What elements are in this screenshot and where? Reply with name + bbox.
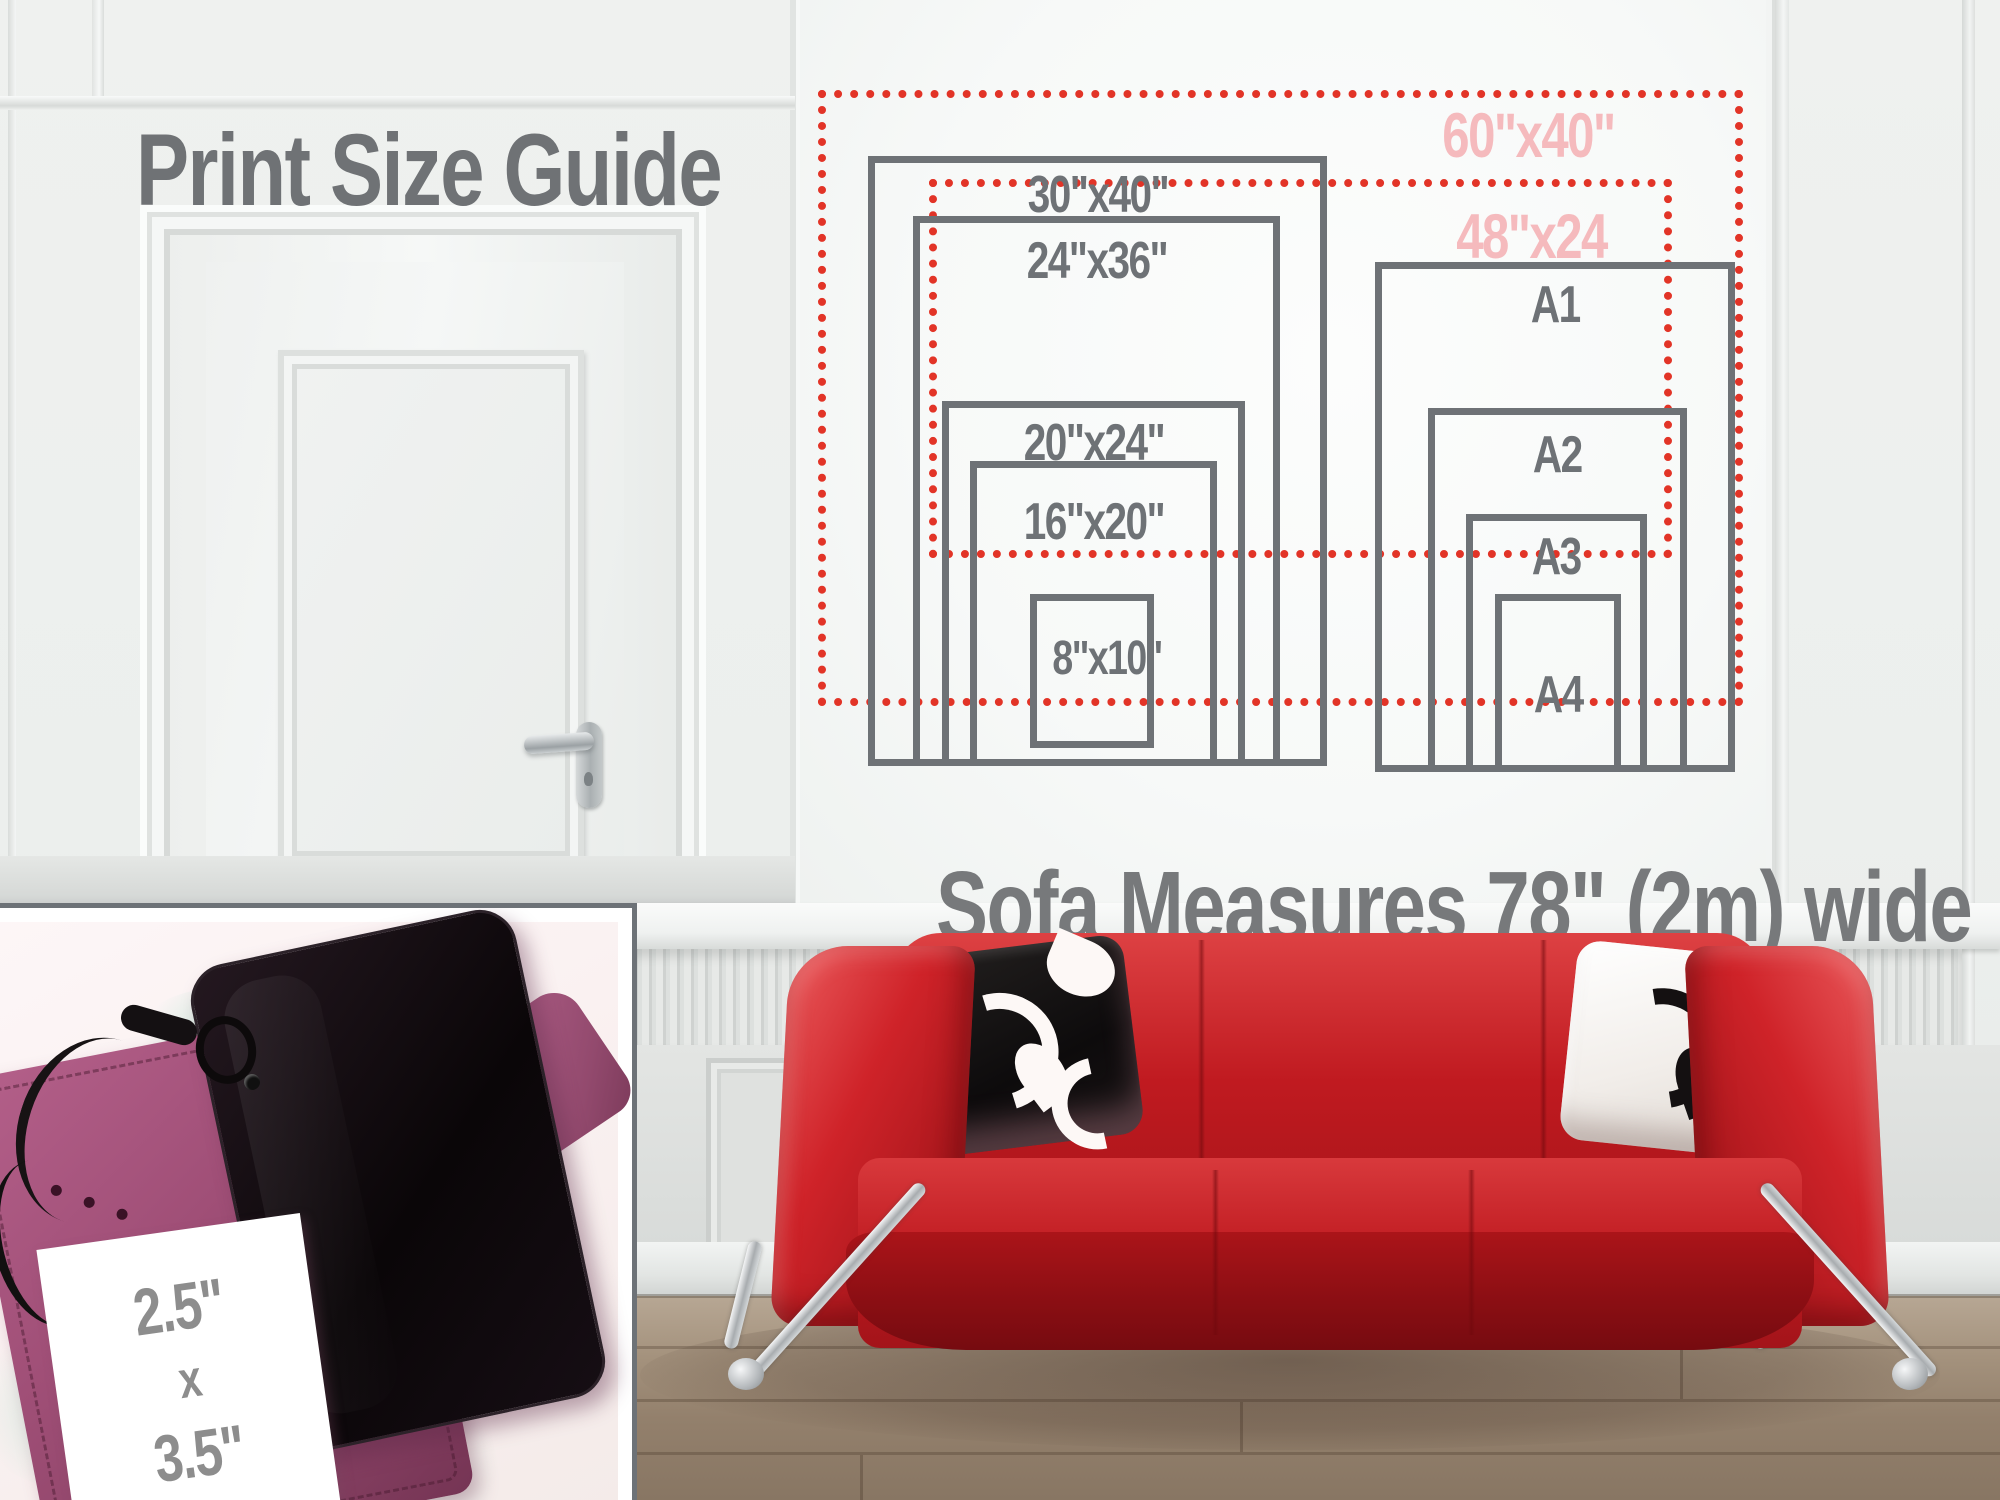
wrist-strap-cord xyxy=(0,1017,194,1244)
pillow-black xyxy=(901,933,1146,1159)
sofa-caption: Sofa Measures 78" (2m) wide xyxy=(790,850,1870,965)
wallet-flap xyxy=(459,981,637,1166)
card-x-label: x xyxy=(175,1353,203,1407)
size-label-a3: A3 xyxy=(1532,531,1581,583)
page-title: Print Size Guide xyxy=(136,112,886,229)
baseboard xyxy=(628,1242,2000,1298)
sofa-seat xyxy=(858,1158,1802,1348)
chair-rail-left xyxy=(0,856,795,906)
door-keyhole xyxy=(584,772,593,786)
sofa-backrest xyxy=(893,933,1765,1263)
sofa-back-seam xyxy=(1198,940,1205,1240)
wainscot xyxy=(628,1045,2000,1245)
door-panel xyxy=(278,350,584,870)
door-handle-plate xyxy=(576,722,602,808)
size-label-60x40: 60"x40" xyxy=(1442,105,1614,168)
sofa-leg-front-right xyxy=(1758,1180,1939,1379)
print-size-guide-scene: Print Size Guide 60"x40" 48"x24 30"x40" … xyxy=(0,0,2000,1500)
size-label-a1: A1 xyxy=(1531,279,1580,331)
wall-molding-far-right-vertical xyxy=(1962,0,1975,1242)
size-label-30x40: 30"x40" xyxy=(1027,169,1167,221)
size-card: 2.5" x 3.5" xyxy=(36,1213,341,1500)
sofa-floor-shadow xyxy=(640,1300,1940,1450)
card-height-label: 3.5" xyxy=(150,1414,248,1492)
size-label-a4: A4 xyxy=(1534,669,1583,721)
sofa-leg-back-right xyxy=(1729,1240,1769,1350)
sofa-base xyxy=(846,1232,1814,1350)
sofa-foot-right xyxy=(1892,1358,1928,1390)
door xyxy=(206,262,624,905)
sofa-back-seam xyxy=(1540,940,1547,1240)
size-label-a2: A2 xyxy=(1533,429,1582,481)
sofa-arm-right xyxy=(1684,946,1890,1326)
door-handle xyxy=(523,732,594,755)
size-label-16x20: 16"x20" xyxy=(1023,496,1163,548)
door-frame xyxy=(140,205,706,905)
inset-aqua-tint xyxy=(130,988,310,1108)
size-box-a4: A4 xyxy=(1495,594,1621,772)
wainscot-panel xyxy=(706,1058,812,1268)
sofa-seat-seam xyxy=(1468,1170,1475,1335)
pillow-white xyxy=(1558,939,1800,1161)
size-label-8x10: 8"x10" xyxy=(1052,635,1161,683)
wrist-strap-clasp xyxy=(118,1002,200,1048)
wall-molding-right-vertical xyxy=(1775,0,1789,942)
sofa-foot-left xyxy=(728,1358,764,1390)
wall-molding-left-vertical xyxy=(8,0,16,903)
sofa-leg-front-left xyxy=(747,1180,928,1379)
wall-molding-left-vertical-2 xyxy=(92,0,104,100)
sofa-arm-left xyxy=(770,946,976,1326)
size-label-48x24: 48"x24 xyxy=(1456,206,1607,269)
sofa-leg-back-left xyxy=(723,1240,763,1350)
card-width-label: 2.5" xyxy=(130,1268,228,1346)
sofa-caption-text: Sofa Measures 78" (2m) wide xyxy=(936,857,1971,957)
size-label-24x36: 24"x36" xyxy=(1026,235,1166,287)
page-title-text: Print Size Guide xyxy=(136,119,721,221)
sofa-seat-seam xyxy=(1212,1170,1219,1335)
strap-eyelet xyxy=(244,1074,260,1090)
wall-floor-shadow-line xyxy=(628,1294,2000,1298)
wall-molding-left-horizontal xyxy=(0,96,795,110)
wrist-strap-ring xyxy=(190,1011,263,1090)
inset-photo-phone-case: 2.5" x 3.5" xyxy=(0,903,637,1500)
size-box-8x10: 8"x10" xyxy=(1030,594,1154,748)
